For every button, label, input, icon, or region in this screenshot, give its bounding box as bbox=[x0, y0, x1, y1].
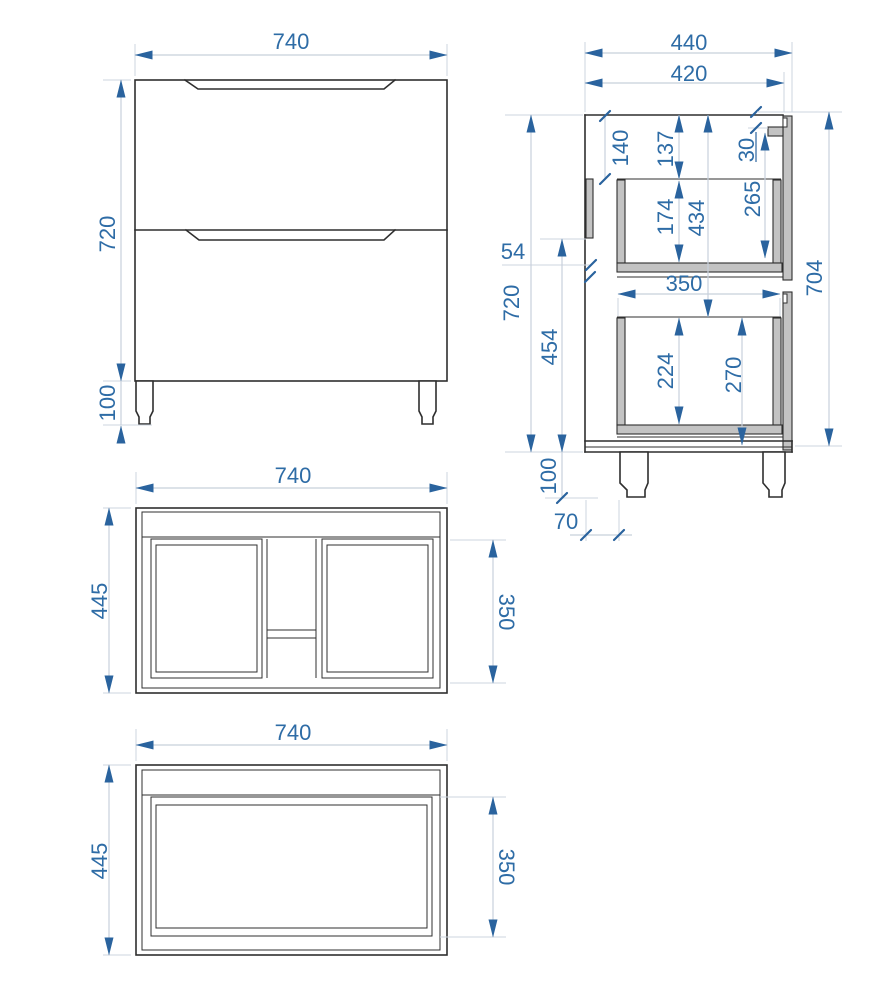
top-view: 740 445 350 bbox=[87, 463, 519, 693]
dim-label-side-upper-front-inner: 265 bbox=[740, 181, 765, 218]
dim-label-side-lower-section: 454 bbox=[537, 329, 562, 366]
dim-side-leg-height: 100 bbox=[536, 452, 598, 503]
dim-side-back-rail-gap: 54 bbox=[501, 239, 596, 282]
front-view: 740 720 100 bbox=[95, 29, 447, 441]
top-view-outline bbox=[136, 508, 447, 693]
dim-front-width: 740 bbox=[135, 29, 447, 76]
dim-label-top-inner-depth: 350 bbox=[494, 594, 519, 631]
dim-label-side-overall-depth: 440 bbox=[671, 30, 708, 55]
dim-label-front-width: 740 bbox=[273, 29, 310, 54]
dim-front-height: 720 bbox=[95, 80, 131, 381]
dim-side-upper-drawer-inner: 174 bbox=[653, 181, 679, 262]
dim-label-side-overall-height: 704 bbox=[802, 260, 827, 297]
dim-label-side-back-rail-gap: 54 bbox=[501, 239, 525, 264]
dim-label-bottom-depth: 445 bbox=[87, 843, 112, 880]
technical-drawing: 740 720 100 bbox=[0, 0, 876, 999]
dim-label-top-depth: 445 bbox=[87, 583, 112, 620]
back-rail-profile bbox=[586, 179, 593, 238]
dim-side-overall-height: 704 bbox=[757, 112, 842, 446]
dim-label-bottom-inner-depth: 350 bbox=[494, 849, 519, 886]
dim-bottom-inner-depth: 350 bbox=[440, 797, 519, 937]
top-rail-bracket bbox=[768, 127, 783, 136]
dim-label-side-leg-setback: 70 bbox=[554, 509, 578, 534]
dim-label-top-width: 740 bbox=[275, 463, 312, 488]
dim-label-side-rail-offset: 30 bbox=[734, 138, 759, 162]
dim-label-front-leg-height: 100 bbox=[95, 385, 120, 422]
bottom-view-outline bbox=[136, 765, 447, 955]
dim-label-bottom-width: 740 bbox=[275, 720, 312, 745]
dim-label-side-top-to-lower-drawer: 434 bbox=[684, 200, 709, 237]
dim-label-front-height: 720 bbox=[95, 216, 120, 253]
dim-side-lower-section: 454 bbox=[537, 239, 562, 452]
bottom-view: 740 445 350 bbox=[87, 720, 519, 955]
side-view: 440 420 140 137 174 434 265 bbox=[499, 30, 842, 541]
dim-label-side-top-rail: 140 bbox=[608, 130, 633, 167]
upper-drawer-front-profile bbox=[783, 116, 792, 280]
dim-side-carcase-height: 720 bbox=[499, 115, 583, 452]
dim-label-side-carcase-height: 720 bbox=[499, 285, 524, 322]
dim-bottom-depth: 445 bbox=[87, 765, 131, 955]
dim-side-carcase-depth: 420 bbox=[585, 61, 784, 112]
side-view-outline bbox=[585, 115, 792, 497]
dim-top-width: 740 bbox=[136, 463, 447, 504]
dim-top-inner-depth: 350 bbox=[450, 540, 519, 683]
front-view-outline bbox=[135, 80, 447, 424]
dim-side-lower-drawer-inner: 224 bbox=[653, 318, 679, 424]
dim-bottom-width: 740 bbox=[136, 720, 447, 761]
dim-side-leg-setback: 70 bbox=[554, 500, 632, 541]
dim-side-drawer-depth: 350 bbox=[618, 271, 780, 316]
lower-drawer-front-profile bbox=[783, 292, 792, 450]
dim-label-side-drawer-depth: 350 bbox=[666, 271, 703, 296]
dim-label-side-leg-height: 100 bbox=[536, 458, 561, 495]
dim-side-top-rail: 140 bbox=[600, 111, 633, 184]
dim-label-side-top-to-drawer: 137 bbox=[653, 131, 678, 168]
dim-label-side-lower-front-height: 270 bbox=[721, 357, 746, 394]
dim-label-side-carcase-depth: 420 bbox=[671, 61, 708, 86]
dim-label-side-lower-drawer-inner: 224 bbox=[653, 353, 678, 390]
dim-top-depth: 445 bbox=[87, 508, 131, 693]
dim-side-top-to-drawer: 137 bbox=[653, 115, 679, 179]
dim-label-side-upper-drawer-inner: 174 bbox=[653, 199, 678, 236]
